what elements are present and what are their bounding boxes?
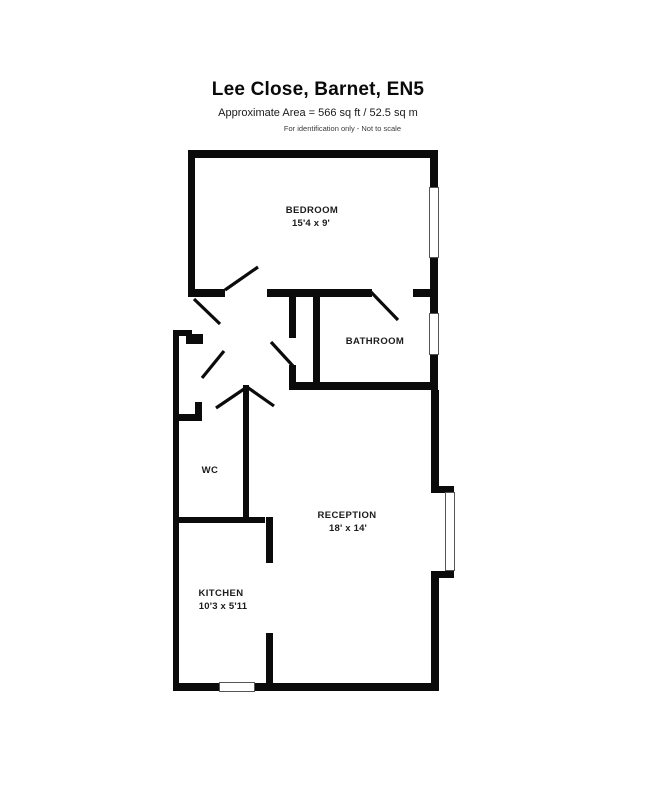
- wall-bay-bottom-jog: [431, 571, 454, 578]
- reception-bay-window: [446, 493, 455, 571]
- wall-bedroom-bottom-left: [188, 289, 225, 297]
- wall-vestibule-top-tab: [186, 334, 203, 344]
- wall-bedroom-top: [188, 150, 438, 158]
- wall-bedroom-bottom-right: [413, 289, 438, 297]
- wall-bedroom-left: [188, 150, 195, 297]
- bedroom-door-swing: [225, 267, 258, 290]
- wall-cupboard-left-upper: [289, 297, 296, 338]
- cupboard-door-swing: [271, 342, 293, 366]
- bedroom-dims: 15'4 x 9': [292, 218, 330, 230]
- floorplan-page: Lee Close, Barnet, EN5 Approximate Area …: [0, 0, 670, 791]
- wall-wc-bottom: [173, 517, 265, 523]
- wall-vestibule-bottom-bar: [179, 414, 202, 421]
- wall-kitchen-divider-upper: [266, 517, 273, 563]
- floorplan-drawing: [0, 0, 670, 791]
- wall-wc-right: [243, 385, 249, 518]
- wall-bathroom-bottom: [289, 382, 438, 390]
- kitchen-window: [220, 683, 255, 692]
- wall-bottom: [173, 683, 439, 691]
- kitchen-label: KITCHEN: [198, 588, 243, 600]
- wall-bedroom-bottom-mid: [267, 289, 372, 297]
- wall-right-mid: [430, 257, 438, 314]
- reception-label: RECEPTION: [317, 510, 376, 522]
- hall-door-swing: [194, 299, 220, 324]
- kitchen-dims: 10'3 x 5'11: [199, 601, 247, 613]
- bathroom-door-swing: [371, 292, 398, 320]
- wall-bathroom-left: [313, 297, 320, 390]
- wall-kitchen-divider-lower: [266, 633, 273, 685]
- entrance-arrow-left: [216, 387, 247, 408]
- wall-right-upper: [430, 150, 438, 188]
- wall-reception-right-lower: [431, 578, 439, 688]
- vestibule-door-swing: [202, 351, 224, 378]
- wall-vestibule-bottom-tab: [195, 402, 202, 414]
- entrance-arrow-right: [247, 387, 274, 406]
- windows: [220, 188, 455, 692]
- reception-dims: 18' x 14': [329, 523, 367, 535]
- bathroom-label: BATHROOM: [346, 336, 404, 348]
- bedroom-window: [430, 188, 439, 258]
- bathroom-window: [430, 314, 439, 355]
- bedroom-label: BEDROOM: [286, 205, 338, 217]
- wc-label: WC: [202, 465, 219, 477]
- wall-reception-right-upper: [431, 390, 439, 486]
- wall-bay-top-jog: [431, 486, 454, 493]
- wall-left: [173, 330, 179, 691]
